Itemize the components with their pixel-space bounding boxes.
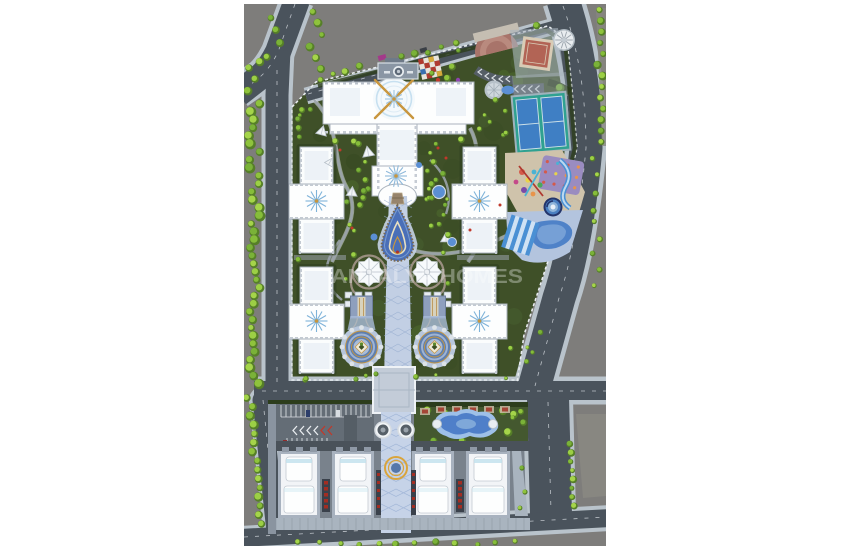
svg-text:ANTALYA HOMES: ANTALYA HOMES [331, 266, 523, 288]
